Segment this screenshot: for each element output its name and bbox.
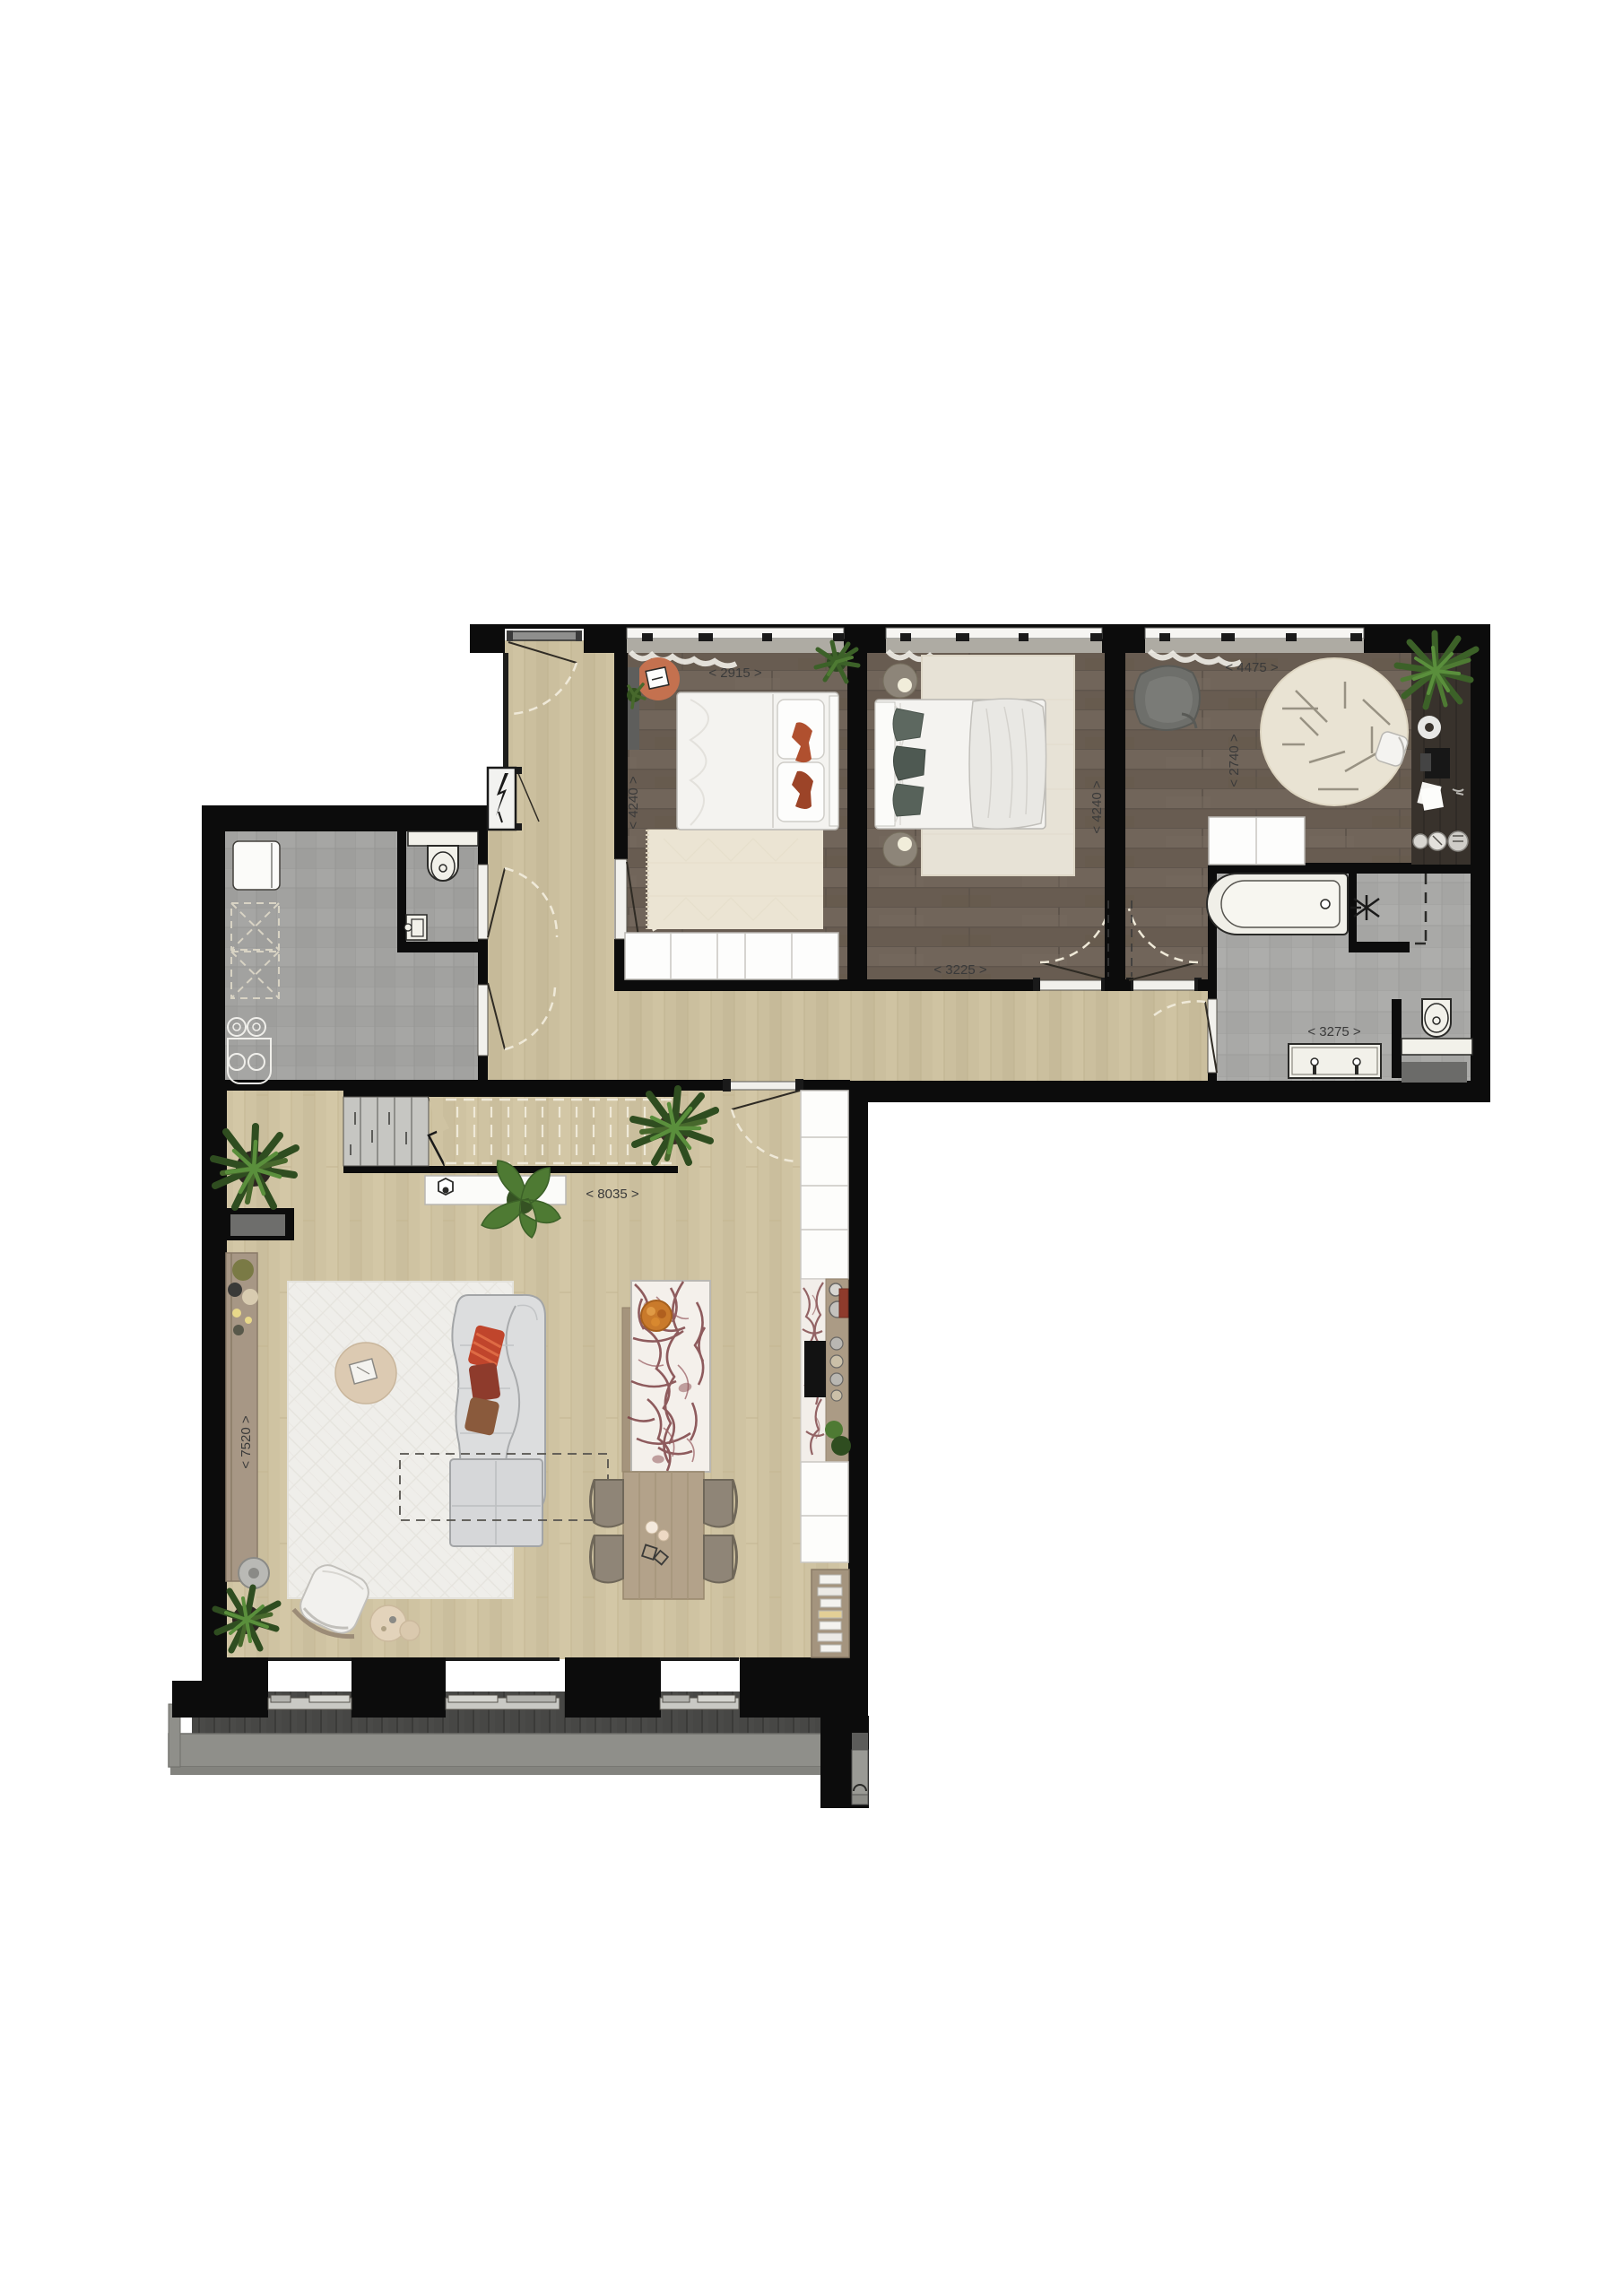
svg-text:< 8035 >: < 8035 >: [586, 1187, 638, 1202]
svg-text:< 4475 >: < 4475 >: [1225, 660, 1278, 675]
svg-text:< 2915 >: < 2915 >: [708, 665, 761, 681]
svg-text:< 3225 >: < 3225 >: [933, 962, 986, 978]
svg-text:< 7520 >: < 7520 >: [239, 1415, 254, 1468]
svg-text:< 2740 >: < 2740 >: [1227, 734, 1242, 787]
svg-text:< 3275 >: < 3275 >: [1307, 1024, 1360, 1039]
svg-text:< 4240 >: < 4240 >: [626, 776, 641, 829]
svg-text:< 4240 >: < 4240 >: [1089, 780, 1105, 833]
